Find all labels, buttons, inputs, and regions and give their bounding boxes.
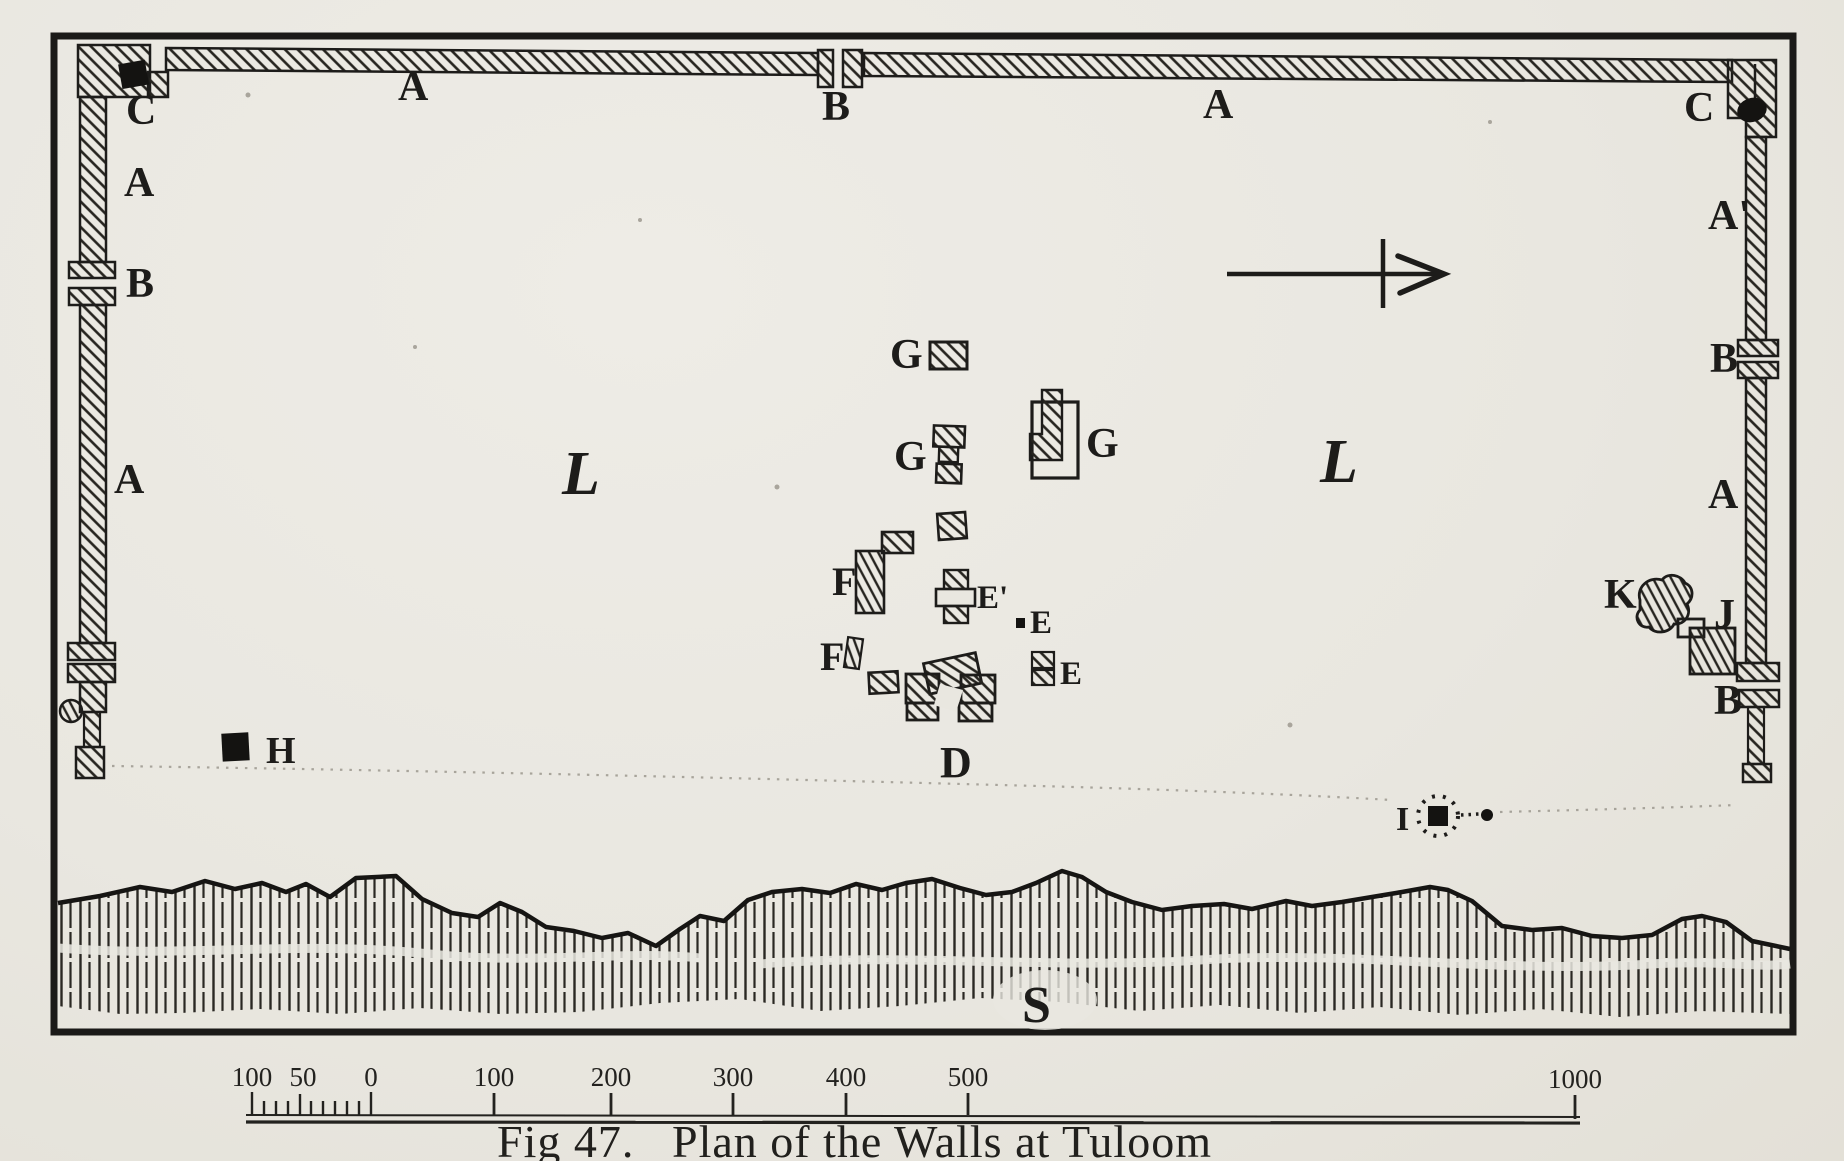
caption-title: Plan of the Walls at Tuloom — [672, 1116, 1212, 1161]
scale-label-0: 0 — [364, 1062, 378, 1092]
i-end-dot — [1481, 809, 1493, 821]
scale-label-1000: 1000 — [1548, 1064, 1602, 1094]
west-gate-south-bar — [69, 288, 115, 305]
structure-square-mid — [937, 512, 967, 540]
scale-label-100: 100 — [474, 1062, 515, 1092]
west-lower-gate-bar-2 — [68, 664, 115, 682]
scale-bar: 100 50 0 100 200 300 400 500 1000 — [232, 1062, 1602, 1123]
d-nw-block — [906, 674, 939, 703]
structure-d-complex — [868, 653, 995, 721]
east-gate-north-bar — [1738, 340, 1778, 356]
west-wall-middle — [80, 305, 106, 643]
label-f-large: F — [832, 559, 856, 604]
west-lower-gate-bar-1 — [68, 643, 115, 660]
ne-corner-tower — [1728, 60, 1776, 137]
structure-e-prime — [936, 570, 975, 623]
north-gate-east-post — [843, 50, 862, 87]
scan-specks — [246, 93, 1493, 728]
structure-e-mid-mark — [1016, 618, 1025, 628]
trail-line-east — [1500, 805, 1736, 812]
scale-label-300: 300 — [713, 1062, 754, 1092]
label-j: J — [1714, 592, 1735, 638]
plan-of-walls-map: C A B A A B A C A' B A K J B G G G F F E… — [0, 0, 1844, 1161]
speck — [1288, 723, 1293, 728]
structure-f-large — [856, 532, 913, 613]
label-f-small: F — [820, 634, 844, 679]
g-mid-top — [933, 425, 965, 447]
label-g-north: G — [890, 332, 923, 378]
e-prime-middle — [936, 589, 975, 606]
speck — [413, 345, 417, 349]
east-gate-south-bar — [1738, 362, 1778, 378]
north-wall-west-segment — [166, 48, 818, 75]
scale-label-50: 50 — [290, 1062, 317, 1092]
label-c-nw: C — [126, 88, 156, 134]
d-ne-block — [961, 675, 995, 703]
figure-caption: Fig 47. Plan of the Walls at Tuloom — [497, 1116, 1212, 1161]
west-wall-narrow-strip — [84, 712, 100, 747]
scale-label-100-left: 100 — [232, 1062, 273, 1092]
label-b-east-bottom: B — [1714, 678, 1742, 724]
structure-h — [221, 732, 249, 761]
e-south-upper — [1032, 652, 1054, 668]
label-g-east: G — [1086, 421, 1119, 467]
east-lower-gate-bar-2 — [1739, 690, 1779, 707]
label-h: H — [266, 730, 296, 772]
label-a-west-top: A — [124, 160, 155, 206]
west-wall-lower — [80, 682, 106, 712]
label-e-mid: E — [1030, 605, 1052, 641]
west-wall-upper — [80, 97, 106, 262]
i-dotted-lead — [1461, 814, 1479, 815]
structure-g-east — [1030, 390, 1078, 478]
label-a-west-mid: A — [114, 457, 145, 503]
east-wall-lower — [1748, 707, 1764, 764]
d-west-block — [868, 671, 898, 693]
speck — [775, 485, 780, 490]
north-arrow-icon — [1227, 239, 1444, 308]
sea-cliff — [58, 871, 1790, 1030]
f-main-block — [856, 551, 884, 613]
scale-label-400: 400 — [826, 1062, 867, 1092]
north-wall-east-segment — [864, 53, 1732, 82]
label-k: K — [1604, 572, 1637, 618]
structure-g-mid — [932, 425, 965, 483]
label-s-sea: S — [1022, 977, 1051, 1034]
label-e-prime: E' — [977, 580, 1008, 616]
i-black-core — [1428, 806, 1448, 826]
d-se-block — [959, 703, 992, 721]
structure-f-small — [844, 637, 863, 669]
e-south-lower — [1032, 670, 1054, 685]
structure-g-north — [930, 342, 967, 369]
f-top-block — [882, 532, 913, 553]
north-gate-west-post — [818, 50, 833, 87]
speck — [246, 93, 251, 98]
e-prime-bottom — [944, 606, 968, 623]
structure-e-south — [1032, 652, 1054, 685]
west-wall — [60, 97, 115, 778]
structure-i-cenote — [1418, 796, 1493, 836]
east-wall-end-block — [1743, 764, 1771, 782]
scanned-figure-page: C A B A A B A C A' B A K J B G G G F F E… — [0, 0, 1844, 1161]
east-lower-gate-bar-1 — [1737, 663, 1779, 681]
g-mid-base — [936, 464, 962, 484]
label-b-north: B — [822, 84, 850, 130]
label-a-east-mid: A — [1708, 472, 1739, 518]
label-b-east-top: B — [1710, 336, 1738, 382]
g-mid-neck — [939, 447, 959, 463]
label-l-plain-west: L — [561, 440, 600, 508]
e-prime-top — [944, 570, 968, 589]
label-g-mid: G — [894, 434, 927, 480]
label-b-west: B — [126, 261, 154, 307]
west-gate-north-bar — [69, 262, 115, 278]
label-a-prime-east: A' — [1708, 193, 1750, 239]
structure-k-rock — [1637, 575, 1692, 632]
west-wall-end-block — [76, 747, 104, 778]
nw-tower-black-core — [118, 60, 149, 89]
label-i: I — [1396, 801, 1409, 838]
d-sw-block — [907, 703, 938, 720]
trail-line-west — [112, 766, 1392, 800]
scale-label-200: 200 — [591, 1062, 632, 1092]
speck — [1488, 120, 1492, 124]
caption-fig-number: Fig 47. — [497, 1116, 634, 1161]
label-e-south: E — [1060, 656, 1082, 692]
label-c-ne: C — [1684, 85, 1714, 131]
scale-label-500: 500 — [948, 1062, 989, 1092]
west-wall-round-structure — [60, 700, 82, 722]
label-l-plain-east: L — [1319, 428, 1358, 496]
dotted-trail — [112, 766, 1736, 812]
label-a-north-east: A — [1203, 82, 1234, 128]
east-wall-middle — [1746, 378, 1766, 663]
label-a-north-west: A — [398, 64, 429, 110]
scale-minor-ticks — [252, 1092, 371, 1115]
label-d: D — [940, 738, 972, 787]
speck — [638, 218, 642, 222]
